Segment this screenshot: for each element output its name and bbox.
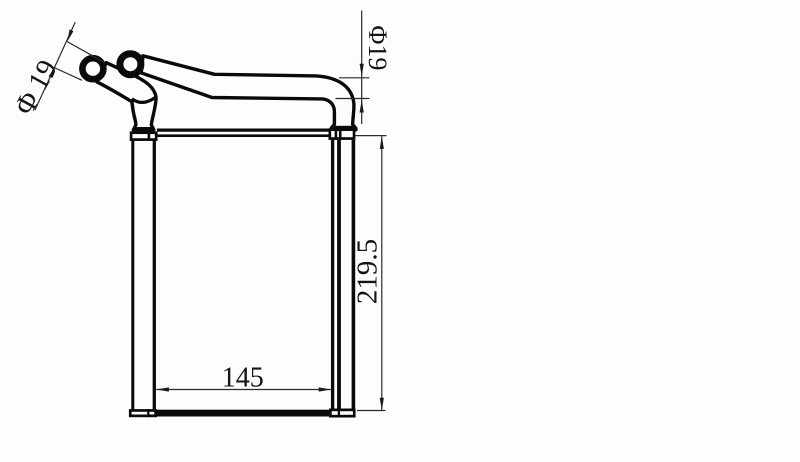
svg-text:219.5: 219.5 (351, 239, 383, 304)
svg-text:145: 145 (222, 363, 264, 394)
svg-text:Φ19: Φ19 (363, 25, 392, 70)
